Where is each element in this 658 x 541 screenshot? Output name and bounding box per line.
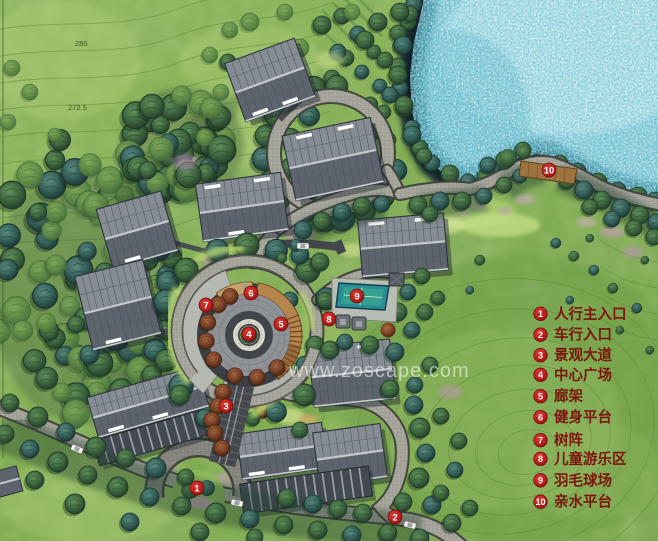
svg-text:5: 5 bbox=[538, 391, 543, 401]
svg-text:9: 9 bbox=[538, 476, 543, 486]
svg-text:树阵: 树阵 bbox=[554, 431, 583, 449]
svg-text:2: 2 bbox=[538, 330, 543, 340]
svg-text:4: 4 bbox=[246, 329, 252, 340]
svg-text:9: 9 bbox=[354, 291, 359, 302]
svg-text:272.5: 272.5 bbox=[68, 103, 87, 112]
svg-text:景观大道: 景观大道 bbox=[554, 346, 612, 364]
svg-text:www.zoscape.com: www.zoscape.com bbox=[288, 360, 470, 382]
svg-text:3: 3 bbox=[538, 350, 543, 360]
svg-text:1: 1 bbox=[194, 483, 200, 494]
svg-text:10: 10 bbox=[544, 165, 555, 176]
svg-text:亲水平台: 亲水平台 bbox=[554, 493, 612, 511]
svg-text:车行入口: 车行入口 bbox=[554, 326, 612, 344]
svg-text:285: 285 bbox=[75, 39, 88, 48]
svg-text:人行主入口: 人行主入口 bbox=[554, 305, 627, 323]
svg-text:中心广场: 中心广场 bbox=[554, 366, 612, 384]
svg-text:健身平台: 健身平台 bbox=[554, 408, 612, 426]
svg-text:8: 8 bbox=[326, 314, 331, 325]
svg-text:8: 8 bbox=[538, 454, 543, 464]
svg-text:儿童游乐区: 儿童游乐区 bbox=[553, 450, 627, 468]
svg-text:廊架: 廊架 bbox=[554, 387, 583, 405]
svg-text:6: 6 bbox=[248, 288, 253, 299]
svg-text:7: 7 bbox=[538, 435, 543, 445]
svg-text:2: 2 bbox=[392, 512, 397, 523]
svg-text:4: 4 bbox=[538, 370, 543, 380]
svg-text:7: 7 bbox=[203, 300, 208, 311]
svg-text:3: 3 bbox=[223, 401, 228, 412]
svg-text:10: 10 bbox=[535, 497, 545, 507]
svg-text:#2: #2 bbox=[530, 283, 538, 290]
svg-text:5: 5 bbox=[278, 319, 284, 330]
svg-text:6: 6 bbox=[538, 412, 543, 422]
svg-text:1: 1 bbox=[538, 309, 543, 319]
svg-text:羽毛球场: 羽毛球场 bbox=[554, 471, 612, 489]
